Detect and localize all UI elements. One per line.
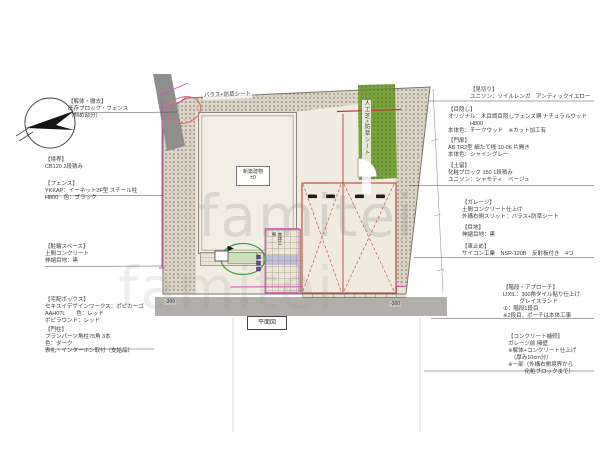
annotation-title: 【土留】 (448, 163, 530, 170)
annotation-left-4: 【宅配ボックス】セキスイデザインワークス：ポピカーゴAAH07L 色：レッドポピ… (45, 297, 144, 325)
annotation-title: 【境界】 (45, 157, 83, 164)
existing-block-strip (153, 74, 185, 151)
annotation-title: 【門柱】 (45, 327, 133, 334)
building-level: ±0 (237, 175, 269, 181)
annotation-line: プランパーツ角柱75角 3本 (45, 334, 133, 341)
annotation-title: 【宅配ボックス】 (45, 297, 144, 304)
annotation-line: 土間コンクリート仕上げ (462, 207, 559, 214)
annotation-line: （厚み10cm分） (508, 355, 576, 362)
annotation-line: 化粧ブロックまで） (508, 369, 576, 376)
annotation-right-3: 【土留】化粧ブロック 150 1段積みユニソン：シャモティ ベージュ (448, 163, 530, 184)
annotation-title: 【ガレージ】 (462, 200, 559, 207)
annotation-line: CB120 2段積み (45, 164, 83, 171)
annotation-line: サイコン工業 NSP-120B 反射板付き 4つ (462, 251, 574, 258)
annotation-right-6: 【車止め】サイコン工業 NSP-120B 反射板付き 4つ (462, 244, 574, 258)
annotation-right-5: 【目地】伸縮目地：黒 (462, 225, 495, 239)
annotation-line: H800 色：ブラック (45, 195, 137, 202)
annotation-line: ①：階段1段目 (503, 306, 580, 313)
annotation-left-5: 【門柱】プランパーツ角柱75角 3本色：ダーク表札・インターホン取付（支給品） (45, 327, 133, 355)
annotation-line: オリジナル：木目調目隠しフェンス塀 ナチュラルウッド (448, 114, 587, 121)
annotation-line: 本体色：シャイングレー (448, 152, 530, 159)
building-label-box: 新築建物 ±0 (236, 166, 270, 186)
annotation-right-4: 【ガレージ】土間コンクリート仕上げ外構右側スリット：バラス+防草シート (462, 200, 559, 221)
porch-note-label: 本体工事 (271, 232, 283, 246)
annotation-line: ガレージ前 擁壁 (508, 341, 576, 348)
annotation-line: グレイスランド (503, 299, 580, 306)
site-plan-page: famitei famitei バラス+防草シート 人工芝+防草シート 本体工事… (0, 0, 600, 449)
annotation-title: 【門扉】 (448, 138, 530, 145)
plan-title: 平面図 (247, 316, 287, 330)
annotation-line: ※一部（外構右側境界から (508, 362, 576, 369)
annotation-line: YKKAP：イーネット2F型 スチール柱 (45, 188, 137, 195)
annotation-right-2: 【門扉】AB TR2型 細たて桟 10-06 片開き本体色：シャイングレー (448, 138, 530, 159)
annotation-line: 伸縮目地：黒 (45, 258, 89, 265)
annotation-left-2: 【フェンス】YKKAP：イーネット2F型 スチール柱H800 色：ブラック (45, 181, 137, 202)
level-mark-left: -300 (164, 299, 176, 305)
annotation-title: 【駐輪スペース】 (45, 244, 89, 251)
annotation-title: 【車止め】 (462, 244, 574, 251)
annotation-title: 【解体・撤去】 (68, 99, 128, 106)
north-arrow-icon (16, 98, 75, 148)
annotation-title: 【目地】 (462, 225, 495, 232)
annotation-line: 伸縮目地：黒 (462, 232, 495, 239)
annotation-title: 【目隠し】 (448, 107, 587, 114)
level-mark-right: -300 (389, 301, 401, 307)
annotation-line: 既存ブロック・フェンス (68, 106, 128, 113)
annotation-line: AB TR2型 細たて桟 10-06 片開き (448, 145, 530, 152)
annotation-line: ポピラウンド：レッド (45, 318, 144, 325)
garage-outline (302, 183, 396, 293)
annotation-line: ※解体+コンクリート仕上げ (508, 348, 576, 355)
annotation-right-0: 【見切り】ユニソン：ソイルレンガ アンティックイエロー (470, 87, 590, 101)
annotation-title: 【コンクリート補修】 (508, 334, 576, 341)
annotation-right-1: 【目隠し】オリジナル：木目調目隠しフェンス塀 ナチュラルウッド H800本体色：… (448, 107, 587, 135)
annotation-line: 土間コンクリート (45, 251, 89, 258)
annotation-line: ユニソン：ソイルレンガ アンティックイエロー (470, 94, 590, 101)
annotation-line: 化粧ブロック 150 1段積み (448, 170, 530, 177)
annotation-line: ※2段目、ポーチは本体工事 (503, 313, 580, 320)
annotation-line: ユニソン：シャモティ ベージュ (448, 177, 530, 184)
annotation-line: セキスイデザインワークス：ポピカーゴ (45, 304, 144, 311)
annotation-left-0: 【解体・撤去】既存ブロック・フェンス（斜め部分） (68, 99, 128, 120)
step-one-highlight (266, 255, 298, 265)
annotation-left-1: 【境界】CB120 2段積み (45, 157, 83, 171)
annotation-title: 【見切り】 (470, 87, 590, 94)
annotation-line: 表札・インターホン取付（支給品） (45, 348, 133, 355)
annotation-line: H800 (448, 121, 587, 128)
annotation-right-7: 【階段・アプローチ】LIXIL：300角タイル貼り仕上げ グレイスランド①：階段… (503, 285, 580, 320)
annotation-line: AAH07L 色：レッド (45, 311, 144, 318)
gate-post-markers (257, 255, 261, 271)
dimension-line (431, 89, 444, 292)
annotation-title: 【フェンス】 (45, 181, 137, 188)
annotation-title: 【階段・アプローチ】 (503, 285, 580, 292)
annotation-line: 色：ダーク (45, 341, 133, 348)
annotation-line: 本体色：チークウッド ※カット加工有 (448, 128, 587, 135)
annotation-line: LIXIL：300角タイル貼り仕上げ (503, 292, 580, 299)
annotation-left-3: 【駐輪スペース】土間コンクリート伸縮目地：黒 (45, 244, 89, 265)
annotation-line: （斜め部分） (68, 113, 128, 120)
annotation-line: 外構右側スリット：バラス+防草シート (462, 214, 559, 221)
plan-linework (0, 0, 600, 449)
annotation-right-8: 【コンクリート補修】ガレージ前 擁壁※解体+コンクリート仕上げ （厚み10cm分… (508, 334, 576, 375)
planter-marker (228, 253, 257, 264)
turf-sheet-label: 人工芝+防草シート (362, 100, 371, 194)
extension-lines (233, 318, 420, 432)
